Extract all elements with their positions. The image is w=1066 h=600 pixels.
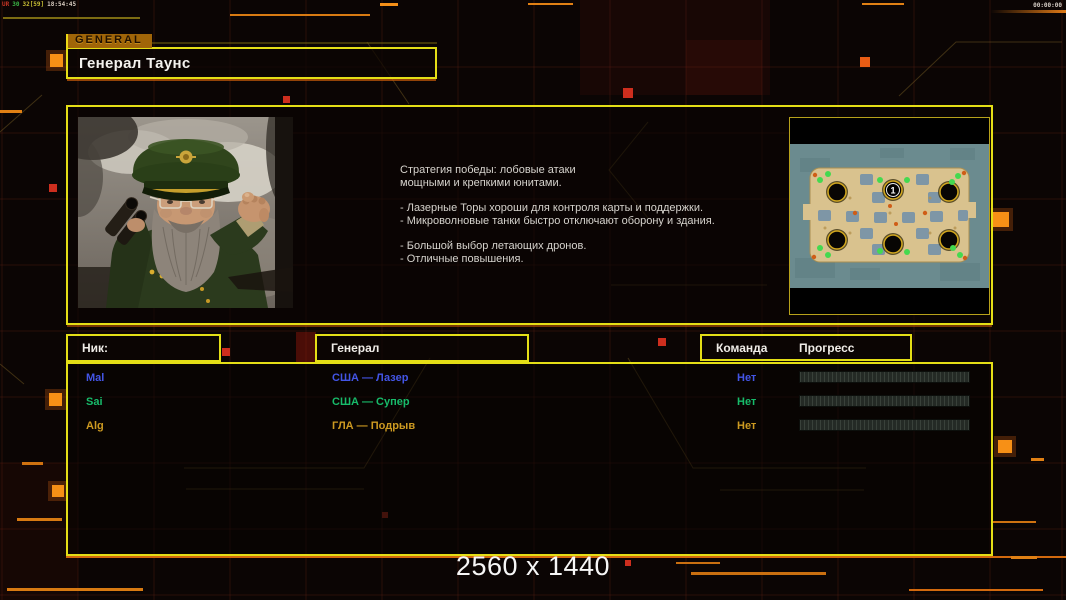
player-nick: Alg [86, 420, 104, 432]
map-preview-box: 1 [789, 117, 990, 315]
player-nick: Sai [86, 396, 103, 408]
players-table-panel: MalСША — ЛазерНетSaiСША — СуперНетAlgГЛА… [66, 362, 993, 556]
player-general: ГЛА — Подрыв [332, 420, 415, 432]
player-team: Нет [737, 372, 756, 384]
general-tab: GENERAL [66, 34, 152, 48]
player-team: Нет [737, 396, 756, 408]
resolution-label: 2560 x 1440 [0, 551, 1066, 582]
page-title: Генерал Таунс [79, 55, 190, 72]
player-general: США — Лазер [332, 372, 408, 384]
nick-header-label: Ник: [82, 341, 108, 355]
debug-segment: 18:54:45 [47, 1, 76, 8]
team-header-label: Команда [716, 341, 767, 355]
general-info-panel: Стратегия победы: лобовые атакимощными и… [66, 105, 993, 325]
svg-text:1: 1 [890, 186, 895, 196]
column-header-team-progress: Команда Прогресс [700, 334, 912, 361]
column-header-general: Генерал [315, 334, 529, 362]
timer-progress-bar [990, 10, 1066, 13]
progress-header-label: Прогресс [799, 336, 854, 359]
debug-segment: UR [2, 1, 9, 8]
map-start-marker: 1 [887, 184, 900, 197]
player-progress-bar [799, 395, 970, 407]
player-nick: Mal [86, 372, 104, 384]
general-header-label: Генерал [331, 341, 379, 355]
player-team: Нет [737, 420, 756, 432]
player-progress-bar [799, 419, 970, 431]
match-timer: 00:00:00 [1033, 2, 1062, 9]
player-row: MalСША — ЛазерНет [68, 367, 991, 391]
debug-overlay: UR3032[59]18:54:45 [2, 1, 79, 8]
title-box: Генерал Таунс [66, 47, 437, 79]
map-preview: 1 [790, 118, 989, 314]
players-rows: MalСША — ЛазерНетSaiСША — СуперНетAlgГЛА… [68, 364, 991, 439]
player-progress-bar [799, 371, 970, 383]
player-row: SaiСША — СуперНет [68, 391, 991, 415]
general-portrait [78, 117, 293, 308]
debug-segment: 30 [12, 1, 19, 8]
loading-screen: UR3032[59]18:54:45 00:00:00 GENERAL Гене… [0, 0, 1066, 600]
player-row: AlgГЛА — ПодрывНет [68, 415, 991, 439]
column-header-nick: Ник: [66, 334, 221, 362]
debug-segment: 32[59] [22, 1, 44, 8]
player-general: США — Супер [332, 396, 410, 408]
